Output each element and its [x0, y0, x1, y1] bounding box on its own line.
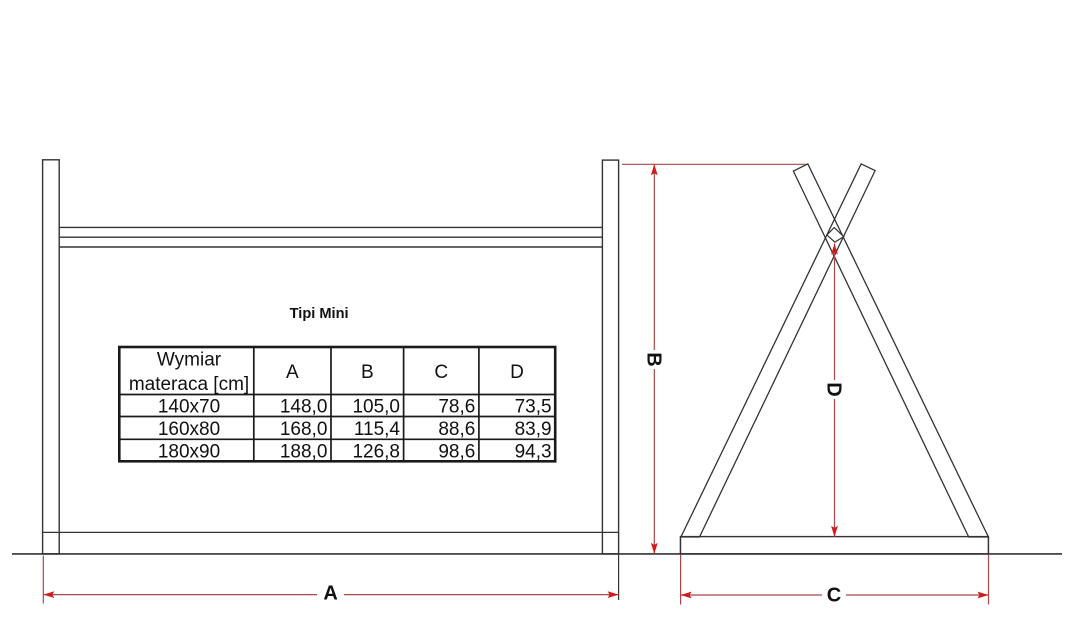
svg-text:98,6: 98,6	[438, 441, 475, 462]
svg-text:73,5: 73,5	[515, 397, 552, 418]
svg-text:78,6: 78,6	[438, 397, 475, 418]
svg-text:105,0: 105,0	[352, 397, 400, 418]
svg-text:D: D	[823, 382, 845, 396]
svg-text:88,6: 88,6	[438, 419, 475, 440]
svg-text:D: D	[510, 362, 524, 383]
svg-text:C: C	[434, 362, 448, 383]
svg-text:A: A	[286, 362, 299, 383]
svg-text:C: C	[827, 584, 841, 606]
svg-text:Wymiar: Wymiar	[157, 350, 222, 371]
svg-text:115,4: 115,4	[354, 419, 401, 440]
svg-text:A: A	[323, 583, 337, 605]
svg-text:B: B	[361, 362, 374, 383]
svg-text:Tipi Mini: Tipi Mini	[290, 306, 349, 322]
svg-text:83,9: 83,9	[515, 419, 552, 440]
svg-text:94,3: 94,3	[515, 441, 552, 462]
svg-text:188,0: 188,0	[280, 441, 328, 462]
svg-text:126,8: 126,8	[352, 441, 400, 462]
svg-text:148,0: 148,0	[280, 397, 328, 418]
svg-text:180x90: 180x90	[158, 441, 220, 462]
svg-text:160x80: 160x80	[158, 419, 220, 440]
svg-text:140x70: 140x70	[158, 397, 220, 418]
svg-text:168,0: 168,0	[280, 419, 328, 440]
svg-text:materaca [cm]: materaca [cm]	[129, 374, 249, 395]
svg-text:B: B	[642, 352, 664, 366]
